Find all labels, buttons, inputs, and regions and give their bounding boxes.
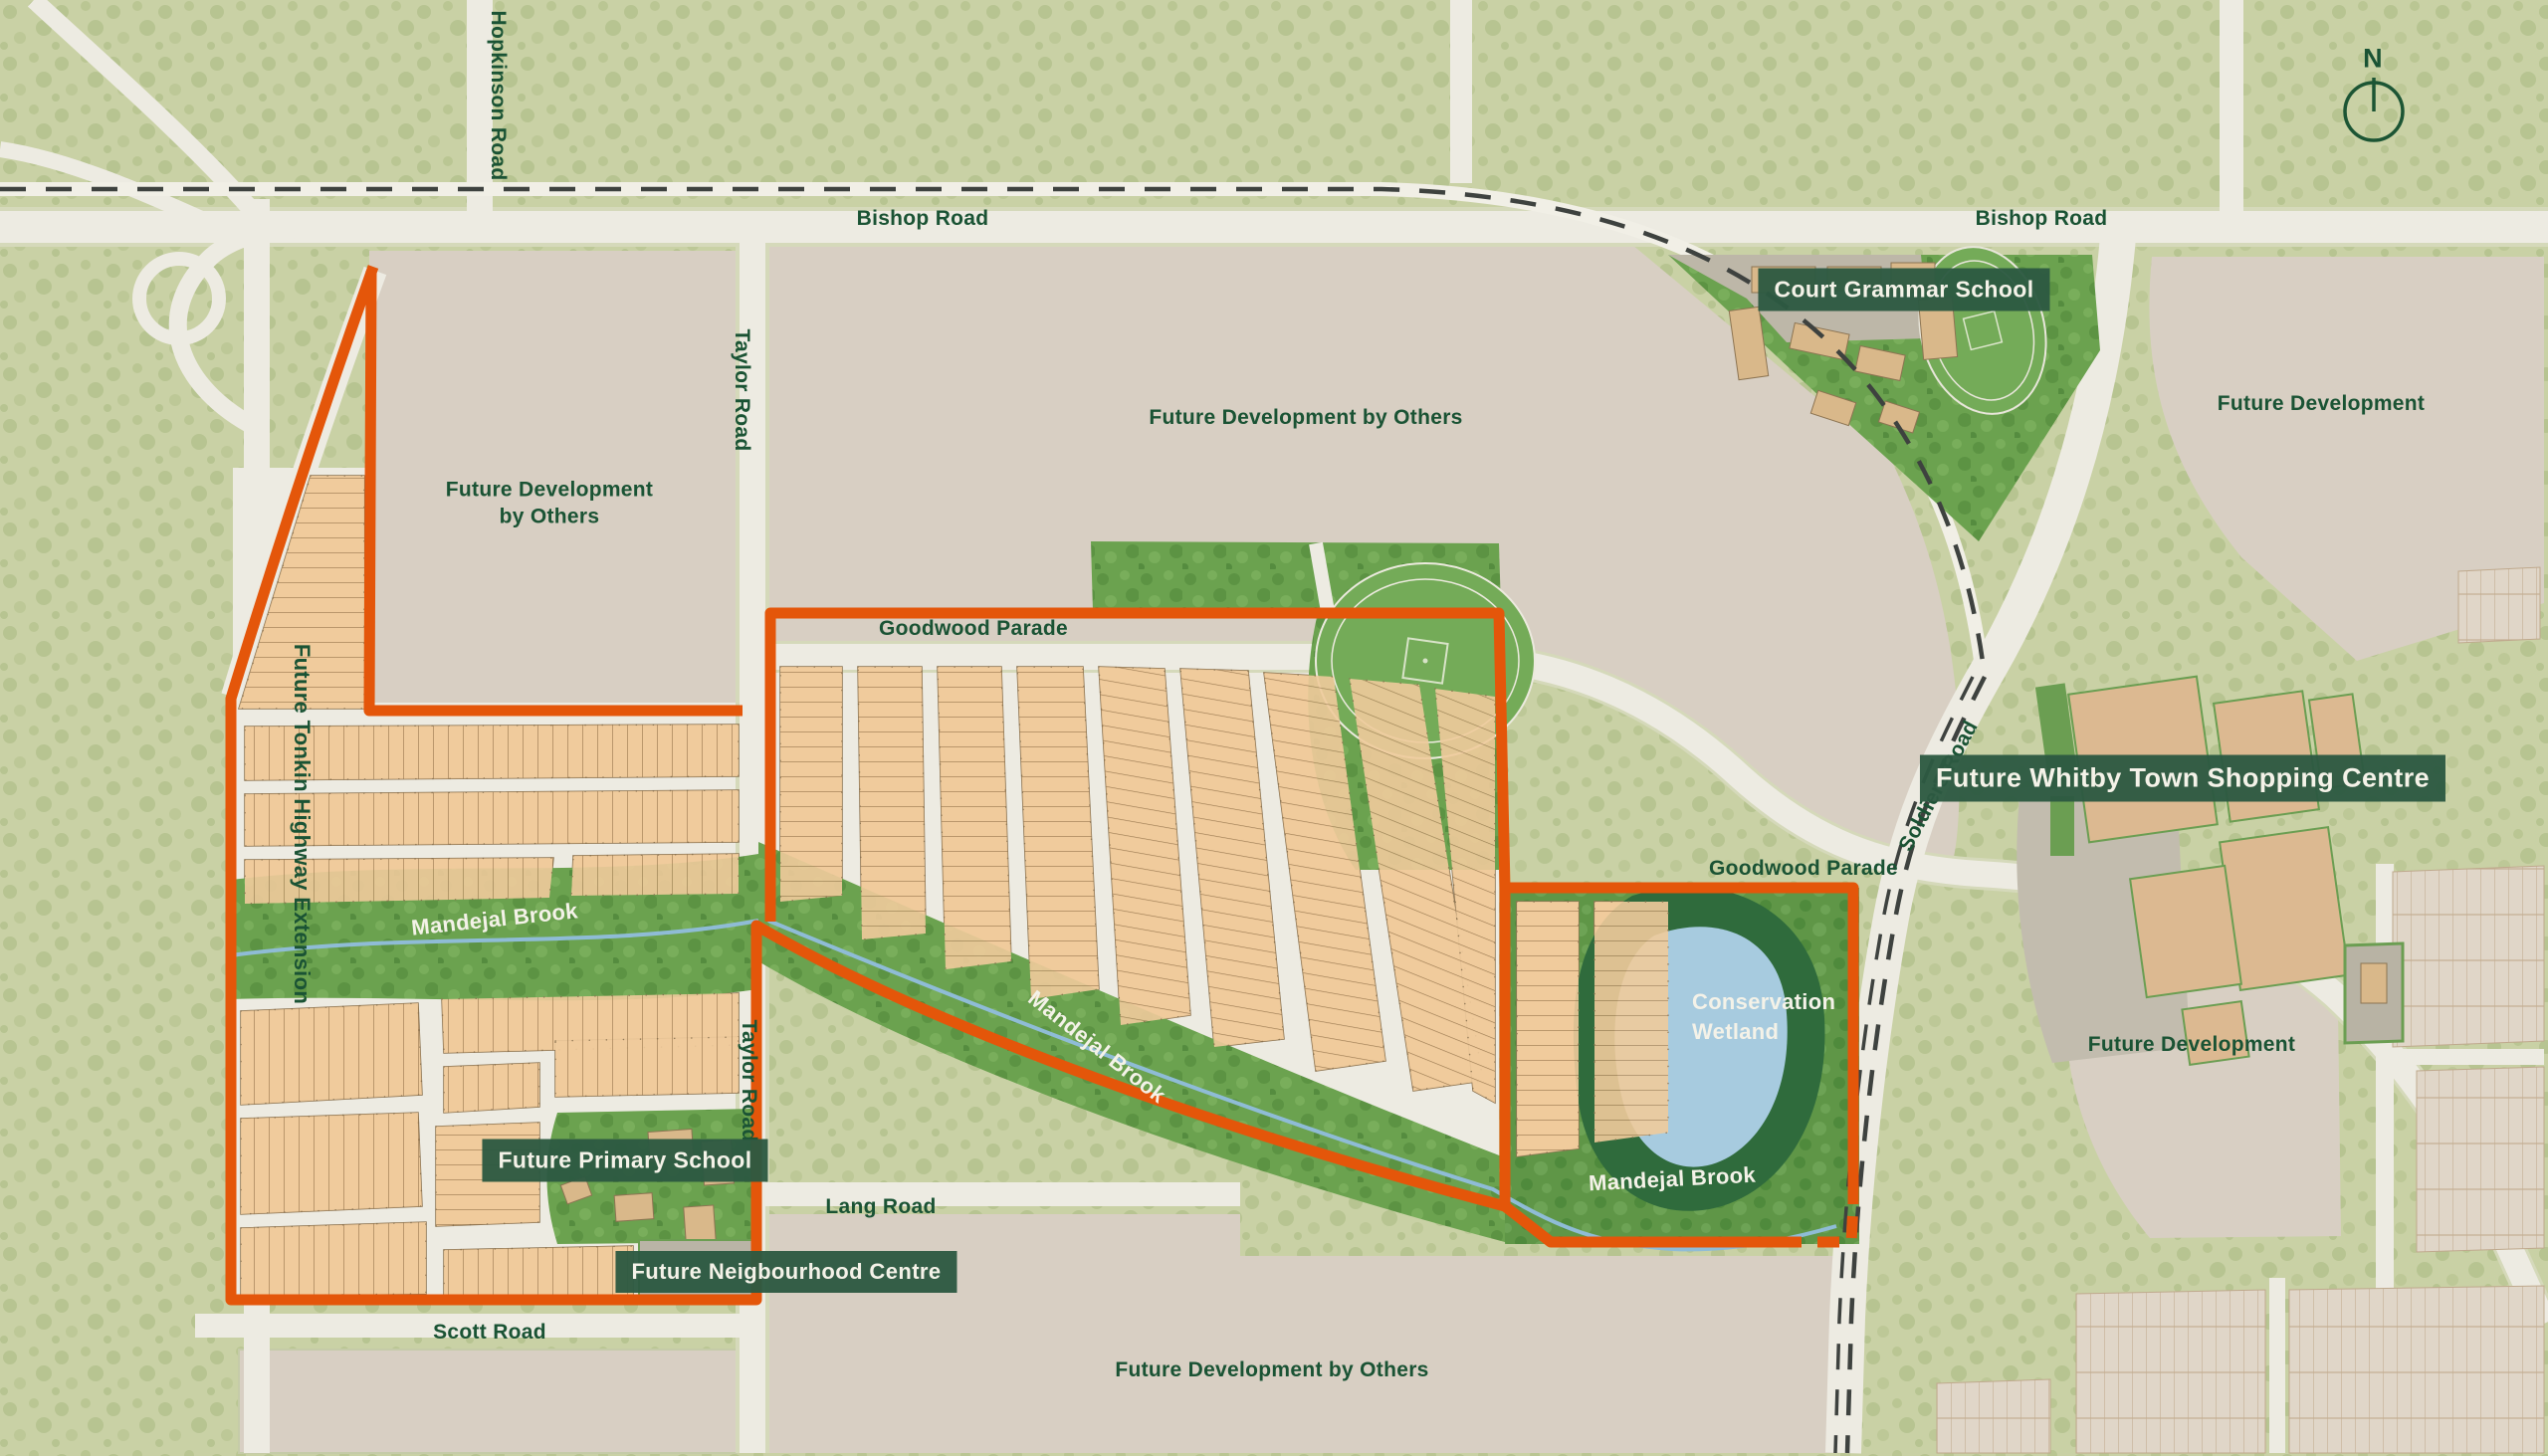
conservation-wetland-label: Conservation Wetland	[1692, 987, 1835, 1046]
bishop-road-label-west: Bishop Road	[857, 207, 989, 231]
scott-road-south-parcel	[239, 1350, 737, 1453]
primary-school-badge: Future Primary School	[482, 1140, 767, 1182]
taylor-road-label-south: Taylor Road	[737, 1019, 760, 1142]
court-grammar-school-badge: Court Grammar School	[1758, 269, 2049, 312]
goodwood-parade-label-west: Goodwood Parade	[879, 617, 1068, 641]
conservation-wetland-line1: Conservation	[1692, 987, 1835, 1017]
whitby-shopping-centre-badge: Future Whitby Town Shopping Centre	[1920, 755, 2445, 802]
future-dev-right-lower-label: Future Development	[2088, 1033, 2295, 1057]
future-dev-topleft-line2: by Others	[446, 504, 653, 530]
scott-road-label: Scott Road	[433, 1321, 546, 1345]
future-dev-topleft-label: Future Development by Others	[446, 477, 653, 531]
master-plan-map: Bishop Road Bishop Road Hopkinson Road T…	[0, 0, 2548, 1456]
goodwood-parade-label-east: Goodwood Parade	[1709, 857, 1898, 881]
tonkin-highway-label: Future Tonkin Highway Extension	[289, 644, 315, 1004]
future-dev-top-label: Future Development by Others	[1149, 406, 1462, 430]
map-artwork	[0, 0, 2548, 1456]
future-dev-topleft-line1: Future Development	[446, 477, 653, 504]
lang-road-label: Lang Road	[825, 1195, 936, 1219]
future-dev-right-top-label: Future Development	[2218, 392, 2425, 416]
conservation-wetland-line2: Wetland	[1692, 1017, 1835, 1047]
compass-north-label: N	[2363, 44, 2383, 75]
bishop-road-label-east: Bishop Road	[1976, 207, 2108, 231]
suburb-building	[2361, 963, 2387, 1003]
future-dev-bottom-label: Future Development by Others	[1115, 1358, 1428, 1382]
taylor-road-label-north: Taylor Road	[730, 328, 753, 451]
hopkinson-road-label: Hopkinson Road	[486, 10, 510, 180]
neighbourhood-centre-badge: Future Neigbourhood Centre	[615, 1251, 956, 1293]
